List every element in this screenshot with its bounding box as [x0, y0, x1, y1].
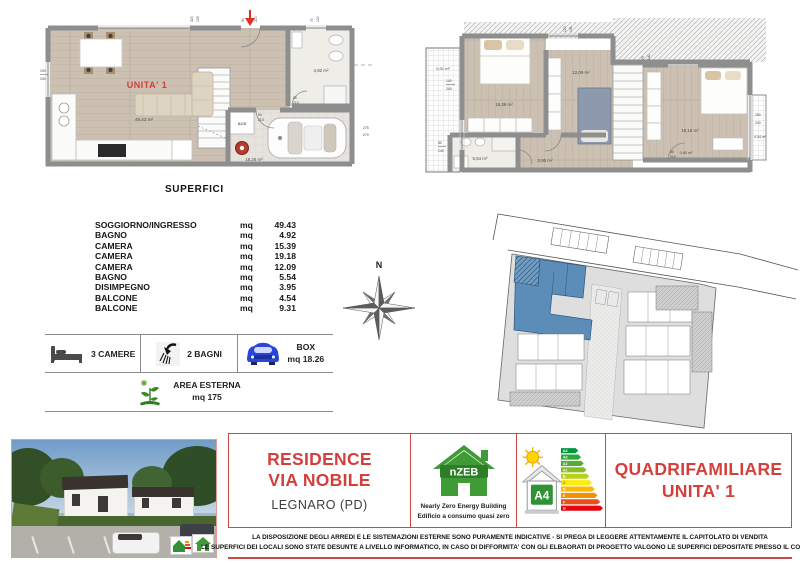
- area-value: 19.18: [262, 251, 296, 261]
- window: [142, 498, 149, 508]
- compass-star: [343, 276, 415, 340]
- nzeb-logo-text: nZEB: [449, 467, 478, 479]
- svg-text:75: 75: [641, 56, 645, 60]
- table-row: BALCONEmq9.31: [95, 303, 335, 313]
- banner-nzeb: nZEB Nearly Zero Energy Building Edifici…: [410, 434, 516, 527]
- window: [72, 494, 80, 506]
- banner-unit: QUADRIFAMILIARE UNITA' 1: [605, 434, 791, 527]
- compass-rose: N: [342, 256, 420, 344]
- svg-text:210: 210: [670, 155, 676, 159]
- features-row-1: 3 CAMERE 2 BAGNI: [45, 334, 333, 373]
- superfici-section: SUPERFICI SOGGIORNO/INGRESSOmq49.43 BAGN…: [95, 184, 335, 314]
- svg-text:240: 240: [40, 77, 46, 81]
- disclaimer: LA DISPOSIZIONE DEGLI ARREDI E LE SISTEM…: [228, 528, 792, 559]
- svg-text:90: 90: [258, 113, 262, 117]
- window: [98, 496, 108, 512]
- svg-text:190: 190: [40, 69, 46, 73]
- svg-text:125: 125: [196, 16, 200, 22]
- nzeb-caption: Nearly Zero Energy Building Edificio a c…: [418, 502, 510, 521]
- roof-hatch-right: [613, 18, 766, 62]
- area-esterna-label: AREA ESTERNA mq 175: [173, 380, 240, 403]
- disclaimer-line1: LA DISPOSIZIONE DEGLI ARREDI E LE SISTEM…: [252, 533, 768, 543]
- sun-icon: [523, 447, 543, 467]
- svg-text:240: 240: [446, 87, 452, 91]
- area-value: 3.95: [262, 282, 296, 292]
- first-floor-plan: 9,31 m² 15,39 m² 12,09 m² 19,18 m² 5,54 …: [418, 10, 768, 182]
- energy-class-label: A4: [534, 488, 550, 502]
- plant-icon: [137, 378, 163, 406]
- svg-text:A1: A1: [563, 468, 568, 472]
- buildings-left: [510, 334, 584, 406]
- room-label: CAMERA: [95, 241, 240, 251]
- camera3-area-label: 19,18 m²: [681, 128, 699, 133]
- acs-label: ACS: [238, 121, 247, 126]
- unit-label: mq: [240, 293, 262, 303]
- svg-text:140: 140: [569, 26, 573, 32]
- ground-floor-plan: ACS UNITA' 1 49,43 m² 4,92 m² 18,26: [40, 8, 375, 176]
- area-value: 12.09: [262, 262, 296, 272]
- area-value: 5.54: [262, 272, 296, 282]
- area-value: 49.43: [262, 220, 296, 230]
- feature-bagni: 2 BAGNI: [140, 335, 236, 372]
- svg-text:B: B: [563, 474, 566, 478]
- nzeb-logo: nZEB: [431, 442, 497, 500]
- energy-bars: A4 A3 A2 A1 B C D E F: [561, 448, 603, 511]
- area-esterna-title: AREA ESTERNA: [173, 380, 240, 390]
- room-label: SOGGIORNO/INGRESSO: [95, 220, 240, 230]
- features-strip: 3 CAMERE 2 BAGNI: [45, 334, 333, 412]
- energy-class-logo: A4 A3 A2 A1 B C D E F: [519, 442, 603, 520]
- unit-label: mq: [240, 241, 262, 251]
- superfici-title: SUPERFICI: [165, 184, 335, 195]
- room-label: DISIMPEGNO: [95, 282, 240, 292]
- soggiorno-area-label: 49,43 m²: [135, 117, 154, 122]
- energy-house: A4: [523, 465, 561, 513]
- window: [172, 498, 181, 508]
- balcone2-area-label: 4,54 m²: [754, 135, 767, 139]
- svg-text:320: 320: [190, 16, 194, 22]
- staircase: [613, 65, 643, 160]
- unit-label: mq: [240, 282, 262, 292]
- bagni-label: 2 BAGNI: [187, 349, 222, 359]
- residence-line1: RESIDENCE: [267, 449, 372, 470]
- svg-text:C: C: [563, 481, 566, 485]
- shower-icon: [156, 342, 180, 366]
- area-value: 15.39: [262, 241, 296, 251]
- area-value: 9.31: [262, 303, 296, 313]
- car-top-view: [268, 118, 346, 158]
- unit-label: mq: [240, 272, 262, 282]
- svg-text:150: 150: [755, 113, 761, 117]
- svg-text:140: 140: [647, 54, 651, 60]
- residence-line2: VIA NOBILE: [268, 470, 371, 491]
- bed-1: [480, 38, 530, 84]
- table-row: CAMERAmq19.18: [95, 251, 335, 261]
- brochure-page: ACS UNITA' 1 49,43 m² 4,92 m² 18,26: [0, 0, 800, 563]
- nzeb-caption-1: Nearly Zero Energy Building: [421, 503, 507, 510]
- site-plan: [488, 192, 800, 432]
- banner-energy-class: A4 A3 A2 A1 B C D E F: [516, 434, 605, 527]
- unit-line1: QUADRIFAMILIARE: [615, 459, 783, 481]
- feature-camere: 3 CAMERE: [45, 335, 140, 372]
- unit-label: mq: [240, 303, 262, 313]
- camera1-area-label: 15,39 m²: [495, 102, 513, 107]
- area-value: 4.92: [262, 230, 296, 240]
- table-row: BALCONEmq4.54: [95, 293, 335, 303]
- unit-label: UNITA' 1: [127, 80, 167, 90]
- table-row: CAMERAmq12.09: [95, 262, 335, 272]
- car-icon: [246, 342, 280, 365]
- svg-text:120: 120: [316, 16, 320, 22]
- unit-label: mq: [240, 230, 262, 240]
- features-row-2: AREA ESTERNA mq 175: [45, 373, 333, 412]
- svg-text:A4: A4: [563, 449, 568, 453]
- unit-label: mq: [240, 251, 262, 261]
- table-row: BAGNOmq5.54: [95, 272, 335, 282]
- balcone1-area-label: 9,31 m²: [436, 66, 450, 71]
- camera2-area-label: 12,09 m²: [572, 70, 590, 75]
- svg-text:80: 80: [438, 141, 442, 145]
- balcony-right: [752, 95, 766, 160]
- banner: RESIDENCE VIA NOBILE LEGNARO (PD) nZEB N…: [228, 433, 792, 528]
- svg-text:70: 70: [310, 18, 314, 22]
- svg-text:A3: A3: [563, 455, 568, 459]
- room-label: CAMERA: [95, 251, 240, 261]
- room-label: CAMERA: [95, 262, 240, 272]
- table-row: DISIMPEGNOmq3.95: [95, 282, 335, 292]
- nzeb-caption-2: Edificio a consumo quasi zero: [418, 513, 510, 520]
- mini-energy-logo: [170, 536, 192, 555]
- feature-box: BOX mq 18.26: [237, 335, 333, 372]
- north-label: N: [376, 260, 383, 270]
- render-photo: [11, 439, 217, 558]
- room-label: BALCONE: [95, 293, 240, 303]
- car-window: [118, 534, 142, 540]
- svg-text:A2: A2: [563, 461, 568, 465]
- camere-label: 3 CAMERE: [91, 349, 135, 359]
- svg-text:80: 80: [670, 150, 674, 154]
- svg-text:210: 210: [293, 101, 299, 105]
- box-value: mq 18.26: [287, 354, 324, 364]
- svg-text:120: 120: [563, 26, 567, 32]
- svg-text:D: D: [563, 487, 566, 491]
- room-label: BAGNO: [95, 230, 240, 240]
- unit-label: mq: [240, 220, 262, 230]
- table-row: CAMERAmq15.39: [95, 241, 335, 251]
- svg-text:140: 140: [446, 79, 452, 83]
- box-title: BOX: [297, 342, 316, 352]
- svg-text:G: G: [563, 506, 566, 510]
- disclaimer-line2: LE SUPERFICI DEI LOCALI SONO STATE DESUN…: [201, 543, 800, 553]
- svg-text:210: 210: [254, 16, 258, 22]
- superfici-table: SOGGIORNO/INGRESSOmq49.43 BAGNOmq4.92 CA…: [95, 220, 335, 314]
- area-value: 4.54: [262, 293, 296, 303]
- table-row: SOGGIORNO/INGRESSOmq49.43: [95, 220, 335, 230]
- unit-line2: UNITA' 1: [662, 481, 735, 503]
- ripostiglio-area-label: 0,80 m²: [680, 151, 694, 155]
- residence-city: LEGNARO (PD): [271, 498, 367, 512]
- box-area-label: 18,26 m²: [245, 157, 263, 162]
- roof-1: [62, 475, 128, 490]
- svg-text:140: 140: [438, 149, 444, 153]
- svg-text:240: 240: [755, 121, 761, 125]
- room-label: BALCONE: [95, 303, 240, 313]
- bagno-area-label: 5,54 m²: [473, 156, 488, 161]
- bagno-area-label: 4,92 m²: [314, 68, 329, 73]
- svg-text:90: 90: [241, 18, 245, 22]
- svg-text:275: 275: [363, 126, 369, 130]
- banner-residence: RESIDENCE VIA NOBILE LEGNARO (PD): [229, 434, 410, 527]
- svg-text:210: 210: [258, 118, 264, 122]
- area-esterna-value: mq 175: [192, 392, 222, 402]
- svg-text:80: 80: [293, 96, 297, 100]
- disimpegno-area-label: 3,95 m²: [538, 158, 553, 163]
- bed-icon: [50, 343, 84, 365]
- svg-text:270: 270: [363, 133, 369, 137]
- unit-label: mq: [240, 262, 262, 272]
- roof-2: [132, 487, 194, 497]
- room-label: BAGNO: [95, 272, 240, 282]
- table-row: BAGNOmq4.92: [95, 230, 335, 240]
- box-label: BOX mq 18.26: [287, 342, 324, 365]
